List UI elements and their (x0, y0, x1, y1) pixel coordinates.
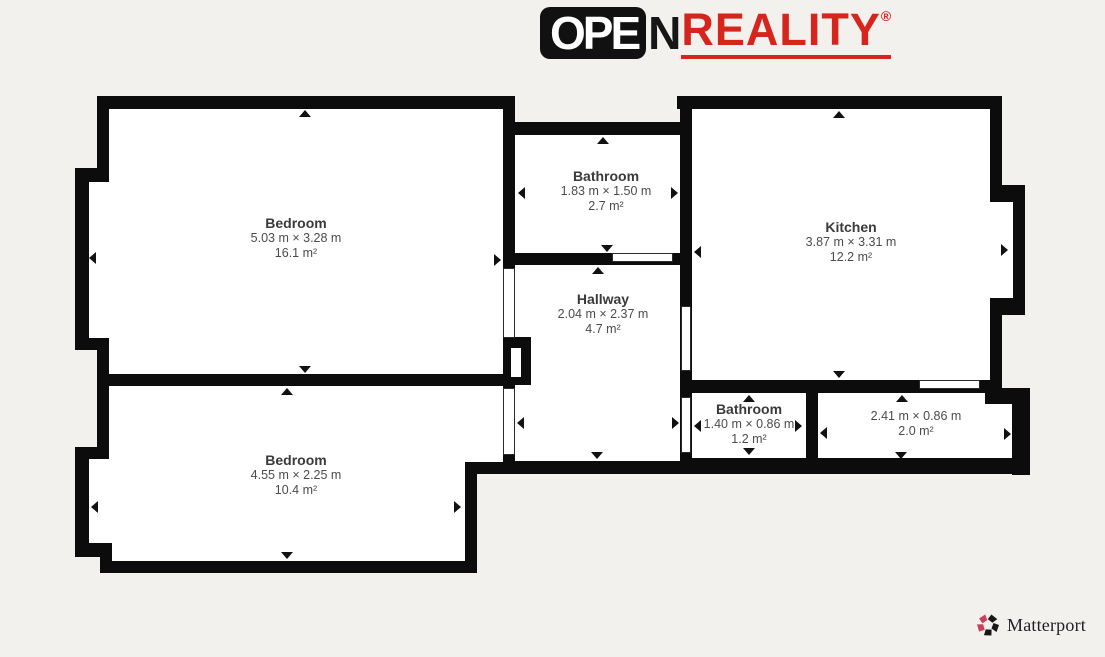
logo-open-text: OPE (550, 10, 638, 56)
room-label-bedroom-2: Bedroom 4.55 m × 2.25 m 10.4 m² (186, 453, 406, 498)
door-opening (503, 388, 515, 455)
wall (680, 458, 1030, 474)
wall (75, 168, 89, 348)
window-opening (919, 380, 980, 389)
logo-registered-mark: ® (881, 9, 891, 23)
matterport-logo: Matterport (975, 612, 1086, 638)
measure-arrow-down (299, 366, 311, 373)
measure-arrow-down (281, 552, 293, 559)
room-area: 10.4 m² (186, 483, 406, 498)
room-name: Hallway (493, 292, 713, 307)
measure-arrow-up (592, 267, 604, 274)
room-area: 12.2 m² (741, 250, 961, 265)
openreality-logo: OPE N REALITY ® (540, 5, 891, 61)
wall (1013, 185, 1025, 315)
logo-open-box: OPE (540, 7, 646, 59)
measure-arrow-down (601, 245, 613, 252)
wall (97, 96, 109, 176)
measure-arrow-left (517, 417, 524, 429)
room-area: 4.7 m² (493, 322, 713, 337)
shaft-cavity (511, 348, 521, 377)
wall (503, 122, 692, 135)
logo-reality-underline: REALITY ® (681, 7, 891, 59)
room-label-storage: 2.41 m × 0.86 m 2.0 m² (806, 409, 1026, 439)
measure-arrow-up (597, 137, 609, 144)
wall (677, 96, 1002, 109)
room-name: Bedroom (186, 453, 406, 468)
measure-arrow-left (91, 501, 98, 513)
room-label-kitchen: Kitchen 3.87 m × 3.31 m 12.2 m² (741, 220, 961, 265)
logo-reality-text: REALITY (681, 7, 881, 52)
wall (465, 465, 477, 573)
room-area: 16.1 m² (186, 246, 406, 261)
measure-arrow-right (494, 254, 501, 266)
matterport-icon (975, 612, 1001, 638)
room-label-bathroom-1: Bathroom 1.83 m × 1.50 m 2.7 m² (496, 169, 716, 214)
measure-arrow-left (694, 246, 701, 258)
room-area: 2.7 m² (496, 199, 716, 214)
room-name: Bedroom (186, 216, 406, 231)
measure-arrow-up (281, 388, 293, 395)
room-dimensions: 4.55 m × 2.25 m (186, 468, 406, 483)
room-dimensions: 2.41 m × 0.86 m (806, 409, 1026, 424)
measure-arrow-down (895, 452, 907, 459)
measure-arrow-up (299, 110, 311, 117)
wall (97, 338, 109, 458)
room-name: Bathroom (496, 169, 716, 184)
measure-arrow-up (833, 111, 845, 118)
wall (503, 461, 692, 474)
measure-arrow-right (454, 501, 461, 513)
room-area: 2.0 m² (806, 424, 1026, 439)
wall (97, 96, 515, 109)
room-dimensions: 3.87 m × 3.31 m (741, 235, 961, 250)
room-dimensions: 1.83 m × 1.50 m (496, 184, 716, 199)
wall (97, 374, 515, 386)
measure-arrow-left (89, 252, 96, 264)
measure-arrow-right (1001, 244, 1008, 256)
room-label-bedroom-1: Bedroom 5.03 m × 3.28 m 16.1 m² (186, 216, 406, 261)
measure-arrow-down (591, 452, 603, 459)
logo-n-text: N (648, 10, 679, 56)
wall (100, 561, 477, 573)
wall (990, 298, 1025, 315)
wall (75, 447, 89, 552)
room-dimensions: 2.04 m × 2.37 m (493, 307, 713, 322)
room-fill-kitchen-niche (985, 202, 1013, 298)
room-label-hallway: Hallway 2.04 m × 2.37 m 4.7 m² (493, 292, 713, 337)
room-dimensions: 5.03 m × 3.28 m (186, 231, 406, 246)
matterport-wordmark: Matterport (1007, 615, 1086, 636)
measure-arrow-down (743, 448, 755, 455)
measure-arrow-down (833, 371, 845, 378)
room-name: Kitchen (741, 220, 961, 235)
measure-arrow-up (896, 395, 908, 402)
door-opening (612, 253, 673, 262)
